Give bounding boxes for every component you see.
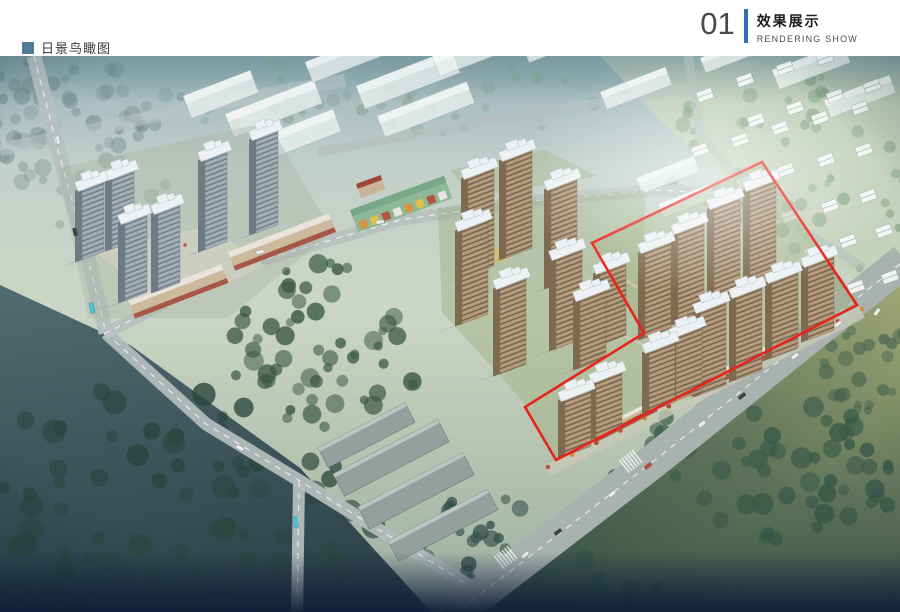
image-caption: 日景鸟瞰图 (22, 38, 111, 57)
section-title-en: RENDERING SHOW (757, 34, 858, 44)
atmosphere-layer (0, 56, 900, 612)
caption-bullet-icon (22, 42, 34, 54)
section-number: 01 (700, 7, 734, 41)
slide: 日景鸟瞰图 01 效果展示 RENDERING SHOW (0, 0, 900, 612)
caption-text: 日景鸟瞰图 (41, 38, 111, 57)
section-title-cn: 效果展示 (757, 11, 858, 31)
aerial-rendering-graphic (0, 56, 900, 612)
section-index: 01 效果展示 RENDERING SHOW (700, 7, 858, 44)
rendering-image (0, 56, 900, 612)
section-divider-bar (744, 9, 748, 43)
